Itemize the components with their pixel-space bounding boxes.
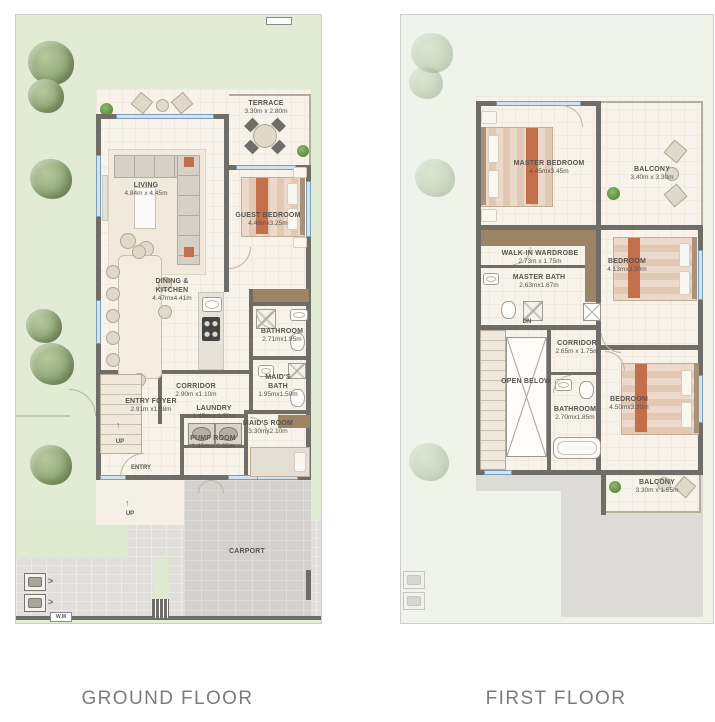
room-label-guest-bedroom: GUEST BEDROOM4.48mx3.25m (228, 211, 308, 229)
headboard (481, 127, 486, 205)
wall-stub (306, 570, 311, 600)
balcony-wall (601, 470, 606, 515)
utility-meter-icon (403, 592, 425, 610)
room-label-open-below: OPEN BELOW (500, 377, 552, 386)
planting-strip (16, 520, 128, 558)
ground-floor-caption: GROUND FLOOR (15, 688, 320, 710)
window-icon (698, 250, 703, 300)
room-label-bedroom-low: BEDROOM4.50mx3.30m (599, 395, 659, 413)
nightstand (481, 209, 497, 222)
pillow (681, 402, 692, 428)
dining-chair (106, 331, 120, 345)
room-label-master-bedroom: MASTER BEDROOM4.45mx3.45m (503, 159, 595, 177)
tree-icon (30, 445, 72, 485)
garden-fence (16, 415, 70, 417)
dn-arrow: ← (507, 321, 515, 329)
water-meter-label: W.M (50, 612, 72, 622)
tv-console (102, 175, 108, 221)
entry-label: ENTRY (116, 465, 166, 471)
kitchen-sink (202, 297, 222, 312)
room-label-bathroom: BATHROOM2.71mx1.95m (253, 327, 311, 345)
interior-wall (253, 356, 311, 360)
nightstand (293, 167, 307, 178)
maids-bed (250, 447, 310, 477)
room-label-bathroom: BATHROOM2.70mx1.85m (545, 405, 605, 423)
stairs-icon (480, 330, 506, 470)
dining-chair (106, 309, 120, 323)
room-label-master-bath: MASTER BATH2.63mx1.67m (497, 273, 581, 291)
roof-below (476, 475, 561, 491)
pillow (681, 370, 692, 396)
headboard (692, 237, 697, 299)
balcony-rail (701, 101, 703, 227)
up-label: UP (118, 511, 142, 517)
dining-chair (158, 305, 172, 319)
balcony-rail (606, 511, 701, 513)
patio-table (156, 99, 169, 112)
chevron-icon: > (48, 598, 53, 607)
room-label-balcony-bottom: BALCONY3.30m x 1.55m (619, 478, 695, 496)
open-void-icon (506, 337, 547, 457)
tree-icon (409, 67, 443, 99)
open-void-icon (583, 303, 601, 321)
tree-icon (30, 159, 72, 199)
sink (290, 309, 308, 321)
room-label-terrace: TERRACE3.30m x 2.80m (221, 99, 311, 117)
terrace-edge (229, 94, 311, 96)
tree-icon (28, 41, 74, 85)
first-floor-panel: ← MASTER BEDROOM4.45mx3.45m BALCONY3.40m… (400, 14, 714, 624)
interior-wall (551, 372, 601, 375)
side-gate (152, 599, 169, 618)
bush-icon (607, 187, 620, 200)
guest-wardrobe (253, 289, 309, 302)
room-label-walk-in-wardrobe: WALK-IN WARDROBE2.73m x 1.75m (499, 249, 581, 267)
floorplan-sheet: { "colors": { "garden": "#e2ecd4", "gard… (0, 0, 715, 722)
dining-chair (106, 353, 120, 367)
dining-chair (106, 265, 120, 279)
stairs-arrow: ↑ (116, 421, 121, 430)
room-label-dining-kitchen: DINING & KITCHEN4.47mx4.41m (144, 277, 200, 304)
interior-wall (253, 302, 311, 306)
tree-icon (30, 343, 74, 385)
terrace-table (253, 124, 277, 148)
tree-icon (411, 33, 453, 73)
dn-label: DN (515, 319, 539, 325)
sofa-cushion (184, 247, 194, 257)
interior-wall (596, 225, 703, 230)
window-icon (96, 300, 101, 344)
room-label-carport: CARPORT (216, 547, 278, 556)
utility-meter-icon (24, 594, 46, 612)
bush-icon (297, 145, 309, 157)
first-floor-caption: FIRST FLOOR (400, 688, 712, 710)
room-label-corridor: CORRIDOR2.65m x 1.75m (546, 339, 608, 357)
up-label: UP (108, 439, 132, 445)
nightstand (481, 111, 497, 124)
tree-icon (26, 309, 62, 343)
wardrobe-unit (585, 230, 596, 302)
tree-icon (28, 79, 64, 113)
window-icon (116, 114, 214, 119)
dining-chair (132, 245, 146, 259)
dining-table (118, 255, 162, 379)
balcony-rail (601, 101, 703, 103)
shower (523, 301, 543, 321)
utility-meter-icon (24, 573, 46, 591)
pillow (488, 170, 499, 198)
up-arrow: ↑ (125, 499, 130, 508)
room-label-balcony-top: BALCONY3.40m x 3.30m (609, 165, 695, 183)
ground-floor-panel: > > W.M (15, 14, 322, 624)
chevron-icon: > (48, 577, 53, 586)
bathtub (553, 437, 601, 459)
tree-icon (415, 159, 455, 197)
stove-icon (202, 317, 220, 341)
wardrobe-unit (481, 230, 593, 246)
room-label-bedroom-mid: BEDROOM4.13mx3.30m (597, 257, 657, 275)
nightstand (293, 237, 307, 248)
pillow (294, 452, 306, 472)
tree-icon (409, 443, 449, 481)
room-label-entry-foyer: ENTRY FOYER2.91m x1.88m (120, 397, 182, 415)
interior-wall (249, 289, 253, 414)
window-icon (236, 165, 296, 170)
toilet (501, 301, 516, 319)
dining-chair (106, 287, 120, 301)
window-icon (484, 470, 512, 475)
window-icon (96, 155, 101, 217)
room-label-pump-room: PUMP ROOM1.45m x 0.65m (182, 434, 244, 452)
garden-gate-arc (69, 389, 96, 416)
sofa-cushion (184, 157, 194, 167)
headboard (694, 363, 699, 433)
pillow (679, 271, 690, 295)
utility-box (266, 17, 292, 25)
interior-wall (596, 101, 601, 230)
room-label-living: LIVING4.84m x 4.45m (111, 181, 181, 199)
utility-meter-icon (403, 571, 425, 589)
toilet (579, 381, 594, 399)
pillow (488, 135, 499, 163)
pillow (287, 183, 298, 205)
interior-wall (244, 410, 311, 414)
pillow (679, 243, 690, 267)
entry-porch (96, 480, 184, 525)
room-label-maids-bath: MAID'S BATH1.95mx1.50m (256, 373, 300, 400)
balcony-rail (699, 475, 701, 513)
